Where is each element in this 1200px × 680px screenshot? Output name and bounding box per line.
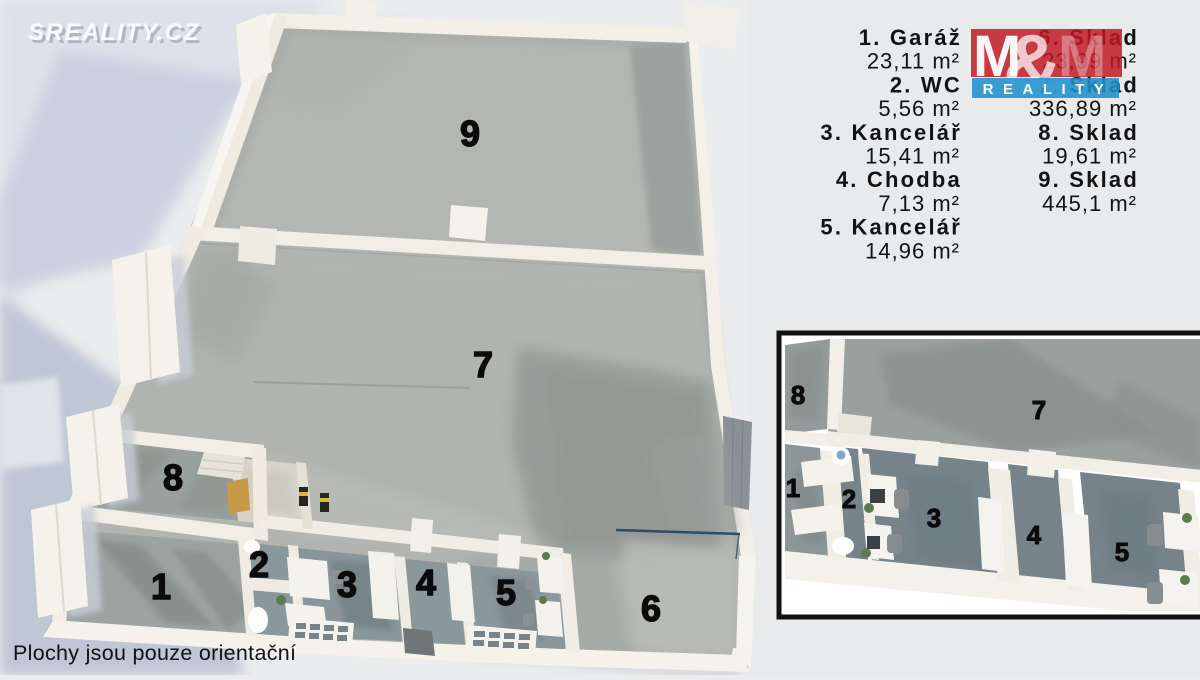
- svg-text:5: 5: [496, 572, 516, 613]
- svg-text:8. Sklad: 8. Sklad: [1038, 120, 1139, 145]
- svg-text:7: 7: [473, 344, 493, 385]
- svg-text:3: 3: [337, 564, 357, 605]
- svg-text:4: 4: [1027, 520, 1042, 550]
- svg-text:2. WC: 2. WC: [890, 72, 962, 97]
- svg-text:5. Kancelář: 5. Kancelář: [820, 215, 962, 240]
- svg-text:8: 8: [163, 457, 183, 498]
- svg-text:2: 2: [249, 544, 269, 585]
- svg-text:1. Garáž: 1. Garáž: [859, 25, 962, 50]
- svg-text:REALITY: REALITY: [983, 81, 1114, 98]
- svg-text:8: 8: [791, 380, 805, 410]
- svg-text:15,41 m²: 15,41 m²: [865, 144, 960, 169]
- svg-text:SREALITY.CZ: SREALITY.CZ: [28, 19, 200, 46]
- svg-text:3: 3: [927, 503, 941, 533]
- svg-text:14,96 m²: 14,96 m²: [865, 238, 960, 263]
- svg-text:9. Sklad: 9. Sklad: [1038, 167, 1139, 192]
- svg-text:9: 9: [460, 113, 480, 154]
- svg-text:4. Chodba: 4. Chodba: [836, 167, 962, 192]
- svg-text:3. Kancelář: 3. Kancelář: [820, 120, 962, 145]
- svg-text:5,56 m²: 5,56 m²: [878, 96, 960, 121]
- svg-text:23,11 m²: 23,11 m²: [867, 49, 960, 74]
- svg-text:Plochy jsou pouze orientační: Plochy jsou pouze orientační: [13, 641, 296, 665]
- svg-text:4: 4: [416, 562, 436, 603]
- svg-text:7,13 m²: 7,13 m²: [878, 191, 960, 216]
- svg-text:1: 1: [786, 473, 800, 503]
- svg-text:7: 7: [1032, 395, 1046, 425]
- svg-text:19,61 m²: 19,61 m²: [1042, 144, 1137, 169]
- svg-text:6: 6: [641, 588, 661, 629]
- svg-text:445,1 m²: 445,1 m²: [1042, 191, 1137, 216]
- svg-text:5: 5: [1115, 537, 1129, 567]
- svg-text:1: 1: [151, 566, 171, 607]
- svg-text:2: 2: [842, 484, 856, 514]
